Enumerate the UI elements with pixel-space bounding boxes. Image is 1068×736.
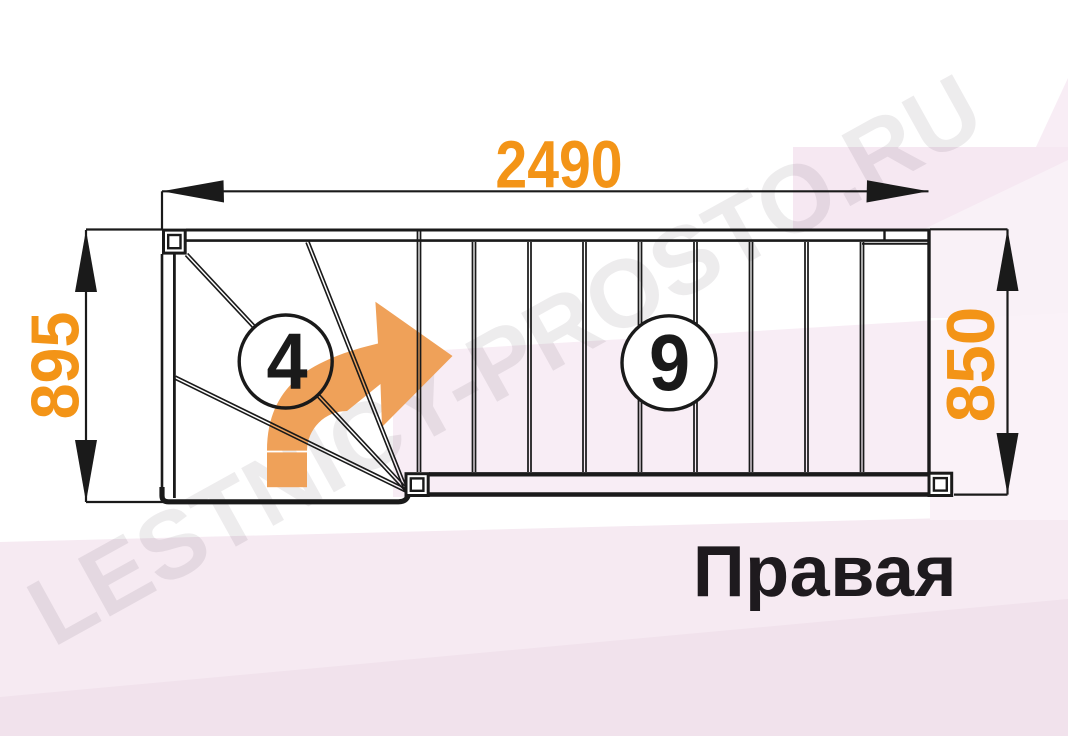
svg-text:4: 4 [266, 318, 307, 406]
svg-text:895: 895 [18, 312, 94, 420]
svg-text:Правая: Правая [693, 532, 957, 612]
svg-text:9: 9 [649, 320, 690, 408]
svg-text:850: 850 [933, 307, 1009, 423]
svg-text:2490: 2490 [495, 129, 622, 203]
